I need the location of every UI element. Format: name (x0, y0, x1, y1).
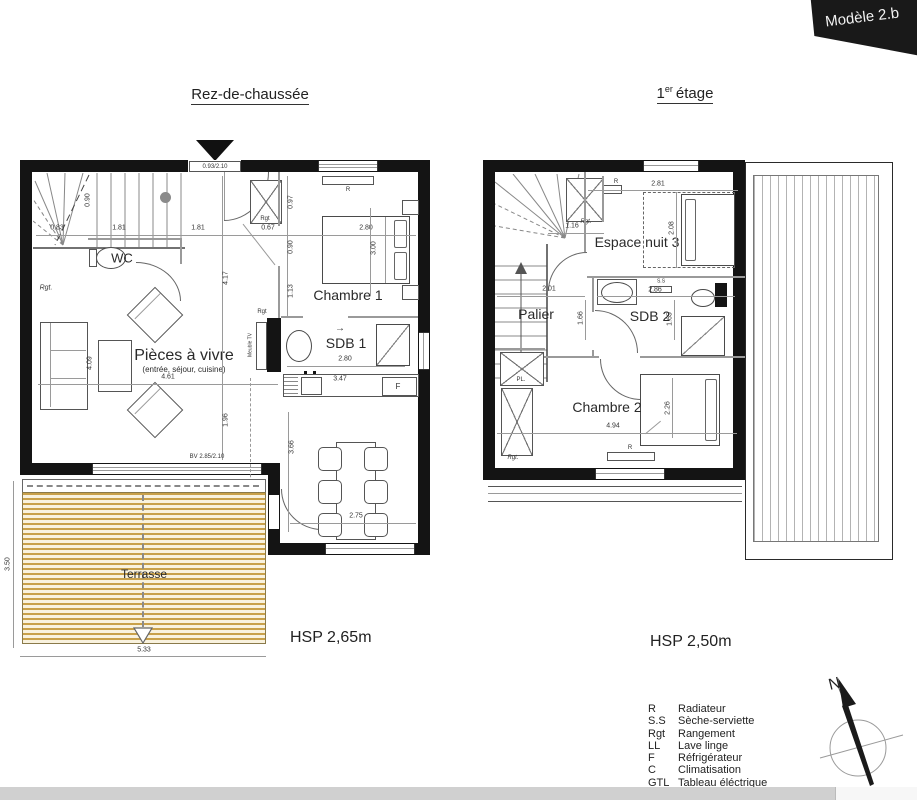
toilet (691, 289, 715, 307)
fridge-label: F (396, 383, 401, 391)
dimension-line (13, 481, 14, 648)
terrace-axis-line (142, 495, 144, 627)
dim-label: 0.90 (288, 240, 295, 254)
dimension-line (674, 300, 675, 340)
dim-label: 5.33 (137, 647, 151, 654)
dim-label: 2.80 (338, 356, 352, 363)
legend-item: FRéfrigérateur (648, 752, 767, 764)
sofa-back-line (50, 323, 51, 407)
window-glass-line (93, 467, 261, 468)
chair (364, 447, 388, 471)
dim-label: 1.96 (223, 413, 230, 427)
dim-label: 2.86 (648, 287, 662, 294)
dimension-line (20, 656, 266, 657)
shower (681, 316, 725, 356)
dim-label: 1.13 (288, 284, 295, 298)
legend-item: S.SSèche-serviette (648, 715, 767, 727)
shower (376, 324, 410, 366)
legend-item: RgtRangement (648, 728, 767, 740)
window (595, 469, 665, 479)
towel-radiator-label: S.S (657, 280, 665, 285)
terrace-door-opening (269, 495, 279, 529)
window-glass-line (319, 164, 377, 165)
model-banner: Modèle 2.b (799, 0, 917, 60)
dim-label: 3.47 (333, 376, 347, 383)
storage-label: PL. (516, 377, 525, 383)
radiator-label: R (628, 445, 632, 451)
bed (640, 374, 720, 446)
sofa-cushion-line (50, 350, 86, 351)
legend-abbr: C (648, 764, 678, 776)
ground-floor-title-wrap: Rez-de-chaussée (180, 86, 320, 104)
legend-label: Rangement (678, 728, 735, 740)
pillow (394, 252, 407, 280)
room-label-sdb2: SDB 2 (630, 309, 670, 323)
first-floor-title-sup: er (665, 84, 673, 94)
legend-label: Lave linge (678, 740, 728, 752)
chair (318, 447, 342, 471)
partition-wall (88, 238, 182, 240)
room-label-espace-nuit: Espace nuit 3 (595, 235, 680, 249)
north-label: N (827, 675, 842, 694)
room-label-chambre1: Chambre 1 (313, 288, 382, 302)
dimension-line (585, 300, 586, 340)
tv-cabinet (256, 322, 267, 370)
sofa-cushion-line (50, 378, 86, 379)
dim-label: 4.09 (87, 356, 94, 370)
legend-label: Sèche-serviette (678, 715, 754, 727)
dim-label: 4.94 (606, 423, 620, 430)
storage-label: Rgt. (580, 219, 591, 225)
window (325, 544, 415, 554)
dim-label: 4.61 (161, 374, 175, 381)
entrance-door-label-box: 0.93/2.10 (189, 161, 241, 172)
dim-label: 1.81 (112, 225, 126, 232)
dim-label: 2.08 (669, 221, 676, 235)
scrollbar-corner (835, 787, 917, 800)
nightstand (402, 285, 419, 300)
tv-cabinet-label: Meuble TV (249, 333, 254, 357)
dim-label: 1.65 (667, 312, 674, 326)
partition-wall (281, 316, 303, 318)
partition-wall (602, 176, 604, 222)
wall-column (267, 318, 281, 372)
first-floor-title: 1erétage (657, 85, 714, 104)
guard-rail (488, 486, 742, 502)
first-floor-title-num: 1 (657, 85, 665, 102)
dim-label: 1.81 (191, 225, 205, 232)
terrace-axis-arrow (133, 627, 153, 644)
sliding-door-arrow: → (335, 324, 345, 334)
chair (364, 480, 388, 504)
dim-label: 2.81 (651, 181, 665, 188)
dimension-line (287, 366, 405, 367)
model-banner-label: Modèle 2.b (824, 5, 900, 31)
floorplan-page: Modèle 2.b Rez-de-chaussée 1erétage 0.93… (0, 0, 917, 800)
radiator (607, 452, 655, 461)
toilet-tank (89, 249, 97, 267)
window-glass-line (423, 333, 424, 369)
nightstand (402, 200, 419, 215)
bay-window-label: BV 2.85/2.10 (190, 454, 225, 460)
chair (318, 480, 342, 504)
legend-item: CClimatisation (648, 764, 767, 776)
dim-label: 3.66 (289, 440, 296, 454)
ground-ceiling-height: HSP 2,65m (290, 629, 372, 647)
partition-wall (592, 278, 594, 312)
dimension-line (588, 190, 738, 191)
partition-wall (180, 238, 182, 264)
pillow (685, 199, 696, 261)
legend-item: RRadiateur (648, 703, 767, 715)
armchair-line (134, 388, 160, 414)
dim-label: 0.90 (85, 193, 92, 207)
dim-label: 1.16 (565, 223, 579, 230)
storage-label: Rgt (257, 309, 266, 315)
legend-abbr: R (648, 703, 678, 715)
roof-hatching (753, 175, 879, 542)
armchair (127, 382, 184, 439)
legend-abbr: F (648, 752, 678, 764)
sink (601, 282, 633, 303)
window (643, 161, 699, 171)
partition-wall (278, 266, 280, 318)
partition-wall (640, 356, 745, 358)
faucet-dot (304, 371, 307, 374)
window-glass-line (93, 470, 261, 471)
legend: RRadiateur S.SSèche-serviette RgtRangeme… (648, 703, 767, 789)
radiator (322, 176, 374, 185)
dim-label: 2.26 (665, 401, 672, 415)
dim-label: 3.00 (371, 241, 378, 255)
window-glass-line (319, 167, 377, 168)
window-glass-line (596, 473, 664, 474)
pillow (705, 379, 717, 441)
wall-segment (483, 160, 745, 172)
threshold-dashed-line (27, 485, 259, 487)
dim-label: 3.50 (5, 557, 12, 571)
window (318, 161, 378, 171)
bay-window (92, 464, 262, 474)
legend-abbr: S.S (648, 715, 678, 727)
legend-abbr: Rgt (648, 728, 678, 740)
storage-label: Rgt. (507, 455, 518, 461)
chair (318, 513, 342, 537)
dim-label: 2.75 (349, 513, 363, 520)
dim-label: 0.83 (50, 225, 64, 232)
dim-label: 1.66 (578, 311, 585, 325)
partition-wall (495, 348, 545, 350)
legend-label: Réfrigérateur (678, 752, 742, 764)
dimension-line (497, 296, 585, 297)
pillow (394, 220, 407, 248)
legend-label: Radiateur (678, 703, 726, 715)
dimension-line (676, 192, 677, 268)
wall-column (715, 283, 727, 307)
sofa (40, 322, 88, 410)
first-ceiling-height: HSP 2,50m (650, 633, 732, 651)
dimension-line (288, 412, 289, 532)
partition-wall (278, 172, 280, 226)
dimension-line (597, 296, 735, 297)
wall-segment (483, 160, 495, 480)
room-label-living: Pièces à vivre (134, 348, 234, 364)
dimension-line (548, 233, 604, 234)
faucet-dot (313, 371, 316, 374)
storage-closet (501, 388, 533, 456)
horizontal-scrollbar[interactable] (0, 787, 917, 800)
window-glass-line (326, 548, 414, 549)
bed (681, 194, 735, 266)
legend-label: Climatisation (678, 764, 741, 776)
room-label-chambre2: Chambre 2 (572, 400, 641, 414)
room-label-wc: WC (111, 252, 133, 265)
guard-rail-line (488, 493, 742, 494)
entrance-door-dimension: 0.93/2.10 (202, 164, 227, 170)
room-label-living-sub: (entrée, séjour, cuisine) (142, 366, 225, 374)
kitchen-sink (301, 377, 322, 395)
partition-wall (587, 276, 745, 278)
partition-wall (348, 316, 418, 318)
room-label-terrasse: Terrasse (121, 568, 167, 580)
dim-label: 0.67 (261, 225, 275, 232)
legend-abbr: LL (648, 740, 678, 752)
dimension-line (36, 235, 416, 236)
storage-label: Rgt. (40, 285, 53, 292)
room-label-palier: Palier (518, 307, 554, 321)
storage-label: Rgt (260, 216, 269, 222)
radiator-label: R (614, 179, 618, 185)
sink (286, 330, 312, 362)
first-floor-title-word: étage (676, 85, 714, 102)
north-compass-icon: N (800, 662, 908, 792)
window (419, 332, 429, 370)
entrance-arrow-icon (196, 140, 234, 161)
dimension-line (497, 433, 737, 434)
legend-item: LLLave linge (648, 740, 767, 752)
partition-wall (584, 172, 586, 252)
first-floor-title-wrap: 1erétage (630, 84, 740, 103)
column (160, 192, 171, 203)
window-glass-line (644, 165, 698, 166)
radiator-label: R (346, 187, 350, 193)
wall-segment (20, 160, 32, 475)
bed-sheet-line (385, 217, 386, 283)
dim-label: 4.17 (223, 271, 230, 285)
ground-floor-title: Rez-de-chaussée (191, 86, 309, 105)
dimension-line (38, 384, 278, 385)
room-label-sdb1: SDB 1 (326, 336, 366, 350)
washing-machine (284, 376, 298, 394)
chair (364, 513, 388, 537)
door-swing-arc (600, 359, 641, 400)
dim-label: 0.97 (288, 195, 295, 209)
dimension-line (290, 523, 416, 524)
dimension-line (672, 378, 673, 438)
dim-label: 2.01 (542, 286, 556, 293)
